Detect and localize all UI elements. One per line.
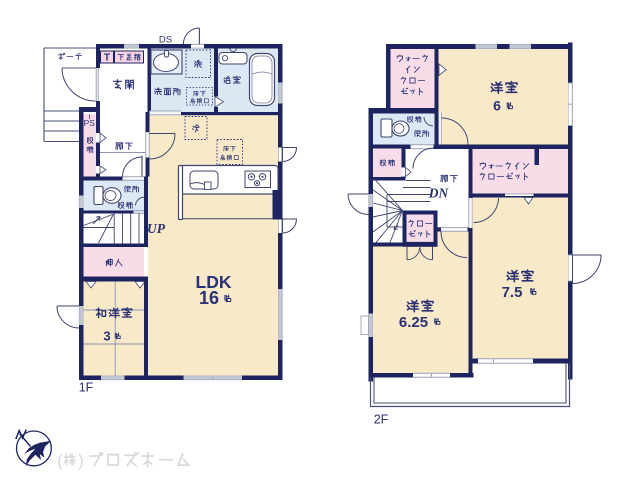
svg-text:): ) bbox=[78, 451, 84, 470]
svg-text:(: ( bbox=[57, 451, 63, 470]
svg-text:6.25: 6.25 bbox=[399, 314, 428, 331]
svg-text:6: 6 bbox=[493, 98, 501, 114]
svg-text:DN: DN bbox=[428, 186, 450, 201]
svg-text:1F: 1F bbox=[79, 381, 94, 395]
svg-text:DS: DS bbox=[159, 35, 172, 46]
svg-text:PS: PS bbox=[84, 118, 96, 128]
svg-text:7.5: 7.5 bbox=[502, 284, 523, 301]
svg-text:T: T bbox=[104, 52, 110, 63]
svg-text:3: 3 bbox=[103, 329, 110, 344]
svg-text:UP: UP bbox=[147, 221, 166, 236]
svg-text:16: 16 bbox=[199, 288, 219, 308]
svg-text:2F: 2F bbox=[374, 413, 389, 427]
